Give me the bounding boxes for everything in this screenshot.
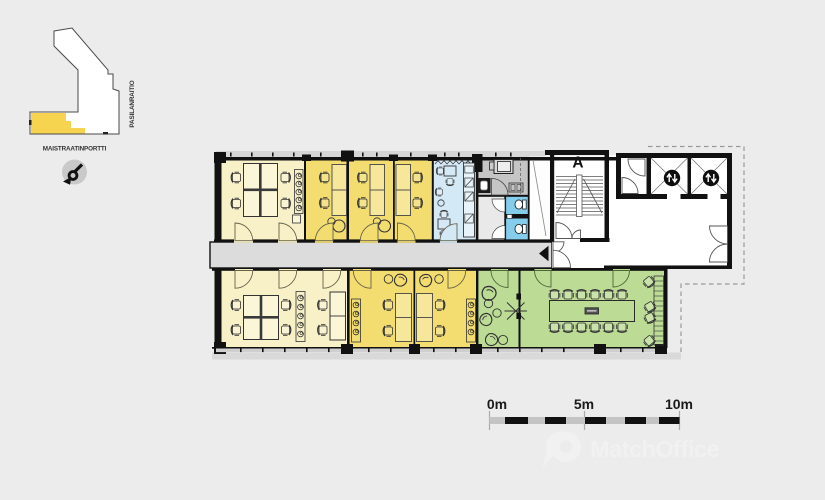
svg-text:A: A xyxy=(572,155,583,172)
svg-text:0m: 0m xyxy=(487,396,507,412)
svg-text:5m: 5m xyxy=(574,396,594,412)
svg-text:MAISTRAATINPORTTI: MAISTRAATINPORTTI xyxy=(43,146,107,153)
svg-text:10m: 10m xyxy=(665,396,693,412)
svg-text:MatchOffice: MatchOffice xyxy=(590,436,719,462)
svg-text:PASILANRAITIO: PASILANRAITIO xyxy=(129,80,136,127)
